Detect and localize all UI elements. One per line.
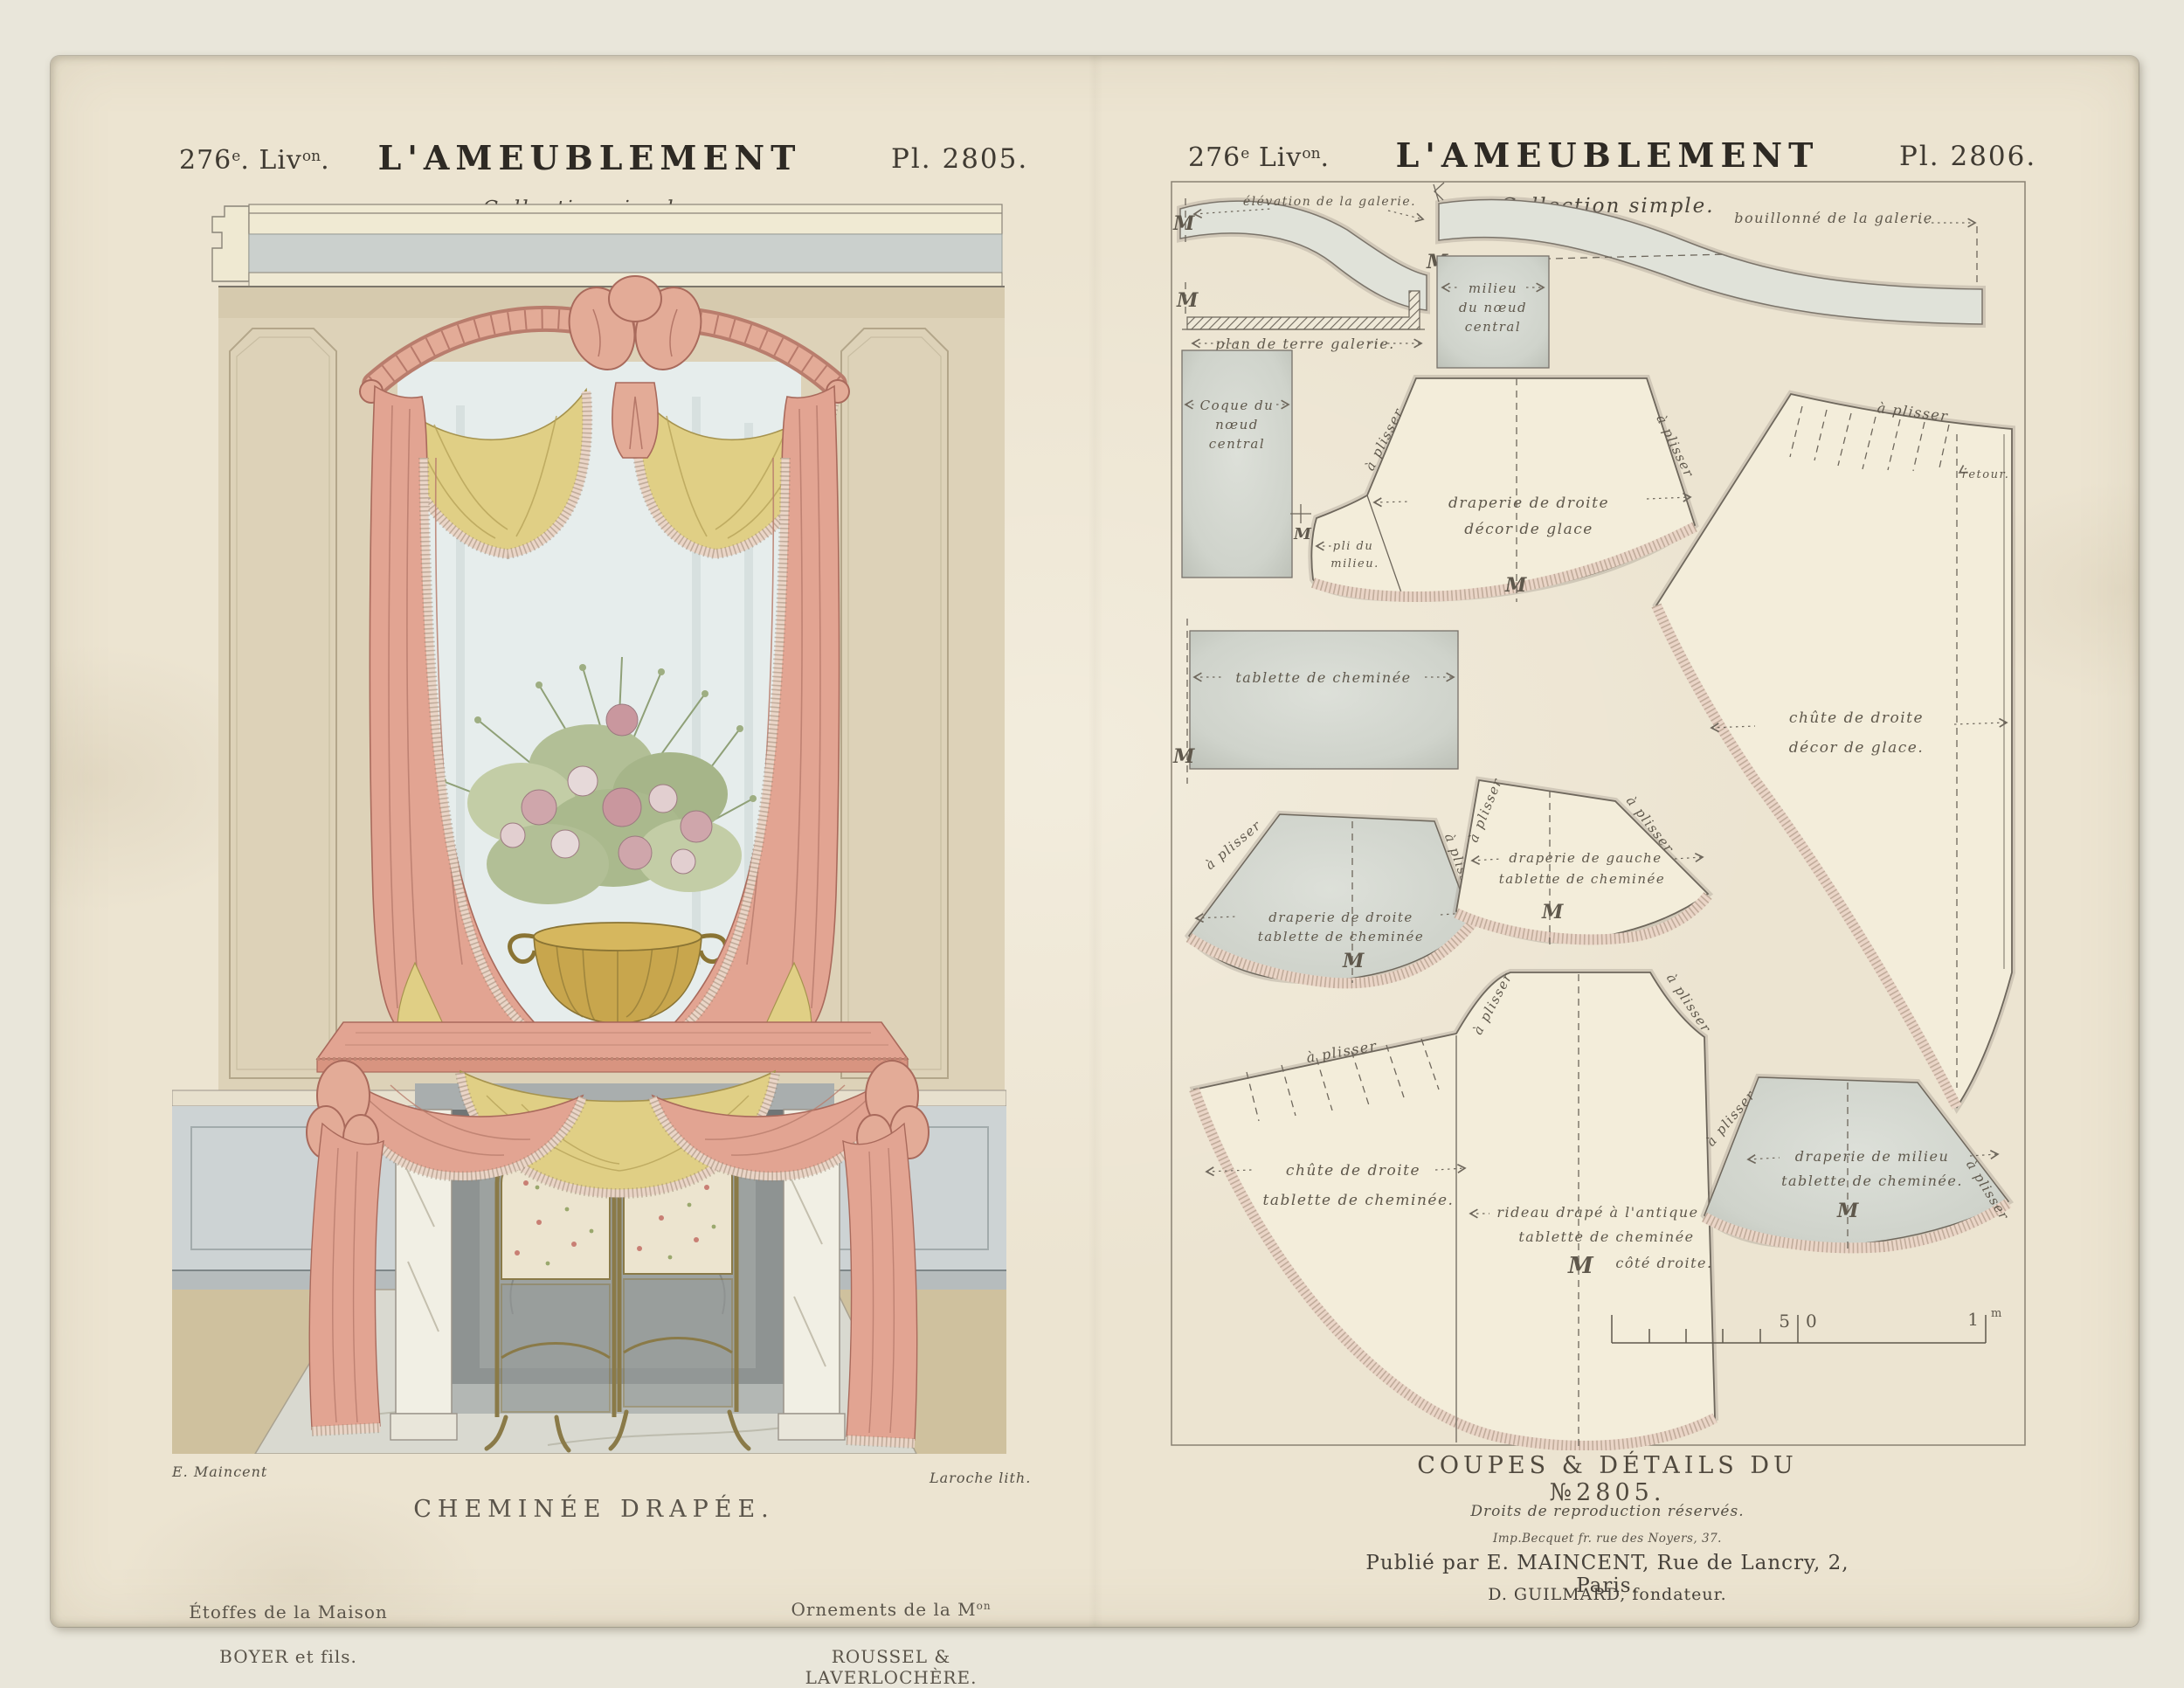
svg-text:central: central bbox=[1209, 436, 1265, 452]
right-livraison: 276e Livon. bbox=[1188, 142, 1330, 173]
scale-label-0: 0 bbox=[1806, 1311, 1817, 1332]
m-mark: M bbox=[1176, 289, 1199, 312]
piece-draperie-droite-tablette: à plisser à plisser draperie de droite t… bbox=[1189, 814, 1479, 983]
label-pli-milieu: pli du bbox=[1333, 540, 1373, 553]
fabric-credit-line1: Étoffes de la Maison bbox=[149, 1602, 428, 1622]
scale-label-1: 1 bbox=[1967, 1309, 1979, 1330]
mantel-shelf bbox=[317, 1022, 908, 1072]
piece-tablette-cheminee: tablette de cheminée M bbox=[1172, 619, 1458, 784]
svg-text:central: central bbox=[1465, 319, 1521, 335]
ornaments-credit-line1: Ornements de la Mon bbox=[751, 1599, 1031, 1620]
svg-text:décor de glace.: décor de glace. bbox=[1789, 739, 1925, 757]
scanned-print-page: { "palette":{ "backdrop":"#e9e6da", "pap… bbox=[0, 0, 2184, 1664]
piece-draperie-milieu-tablette: à plisser à plisser draperie de milieu t… bbox=[1703, 1077, 2012, 1250]
left-plate-number: Pl. 2805. bbox=[891, 143, 1028, 175]
label-bouillonne: bouillonné de la galerie bbox=[1734, 210, 1932, 226]
coupes-title: COUPES & DÉTAILS DU №2805. bbox=[1380, 1452, 1835, 1506]
label-milieu-noeud: milieu bbox=[1469, 280, 1517, 296]
m-mark: M bbox=[1342, 950, 1365, 972]
m-mark: M bbox=[1172, 745, 1195, 768]
m-mark: M bbox=[1567, 1253, 1594, 1279]
svg-text:côté droite.: côté droite. bbox=[1615, 1255, 1712, 1271]
svg-text:tablette de cheminée: tablette de cheminée bbox=[1518, 1228, 1694, 1245]
piece-chute-droite-glace: à plisser retour. chûte de droite décor … bbox=[1656, 394, 2012, 1107]
piece-draperie-gauche-tablette: à plisser à plisser draperie de gauche t… bbox=[1456, 776, 1708, 946]
fireplace-illustration bbox=[172, 196, 1006, 1454]
svg-text:tablette de cheminée.: tablette de cheminée. bbox=[1781, 1173, 1963, 1189]
label-plan-de-terre: plan de terre galerie. bbox=[1215, 336, 1395, 352]
label-draperie-droite-tablette: draperie de droite bbox=[1268, 910, 1413, 925]
label-coque: Coque du bbox=[1200, 398, 1275, 413]
label-chute-glace: chûte de droite bbox=[1789, 709, 1924, 727]
pattern-diagram: M élévation de la galerie. M bouillonné … bbox=[1168, 179, 2028, 1450]
left-plate-title: L'AMEUBLEMENT bbox=[349, 138, 830, 177]
scale-label-5: 5 bbox=[1779, 1311, 1790, 1332]
label-rideau-antique: rideau drapé à l'antique bbox=[1496, 1204, 1698, 1221]
label-draperie-milieu: draperie de milieu bbox=[1795, 1148, 1950, 1165]
svg-text:milieu.: milieu. bbox=[1330, 557, 1379, 571]
label-retour: retour. bbox=[1962, 468, 2010, 481]
label-tablette: tablette de cheminée bbox=[1235, 669, 1411, 686]
svg-text:tablette de cheminée: tablette de cheminée bbox=[1258, 929, 1425, 944]
right-plate-number: Pl. 2806. bbox=[1899, 141, 2036, 172]
artist-credit: E. Maincent bbox=[172, 1463, 267, 1480]
founder-credit: D. GUILMARD, fondateur. bbox=[1345, 1585, 1870, 1604]
svg-text:tablette de cheminée: tablette de cheminée bbox=[1499, 871, 1666, 887]
right-plate-title: L'AMEUBLEMENT bbox=[1367, 135, 1848, 175]
m-mark: M bbox=[1504, 574, 1527, 597]
label-elevation-galerie: élévation de la galerie. bbox=[1243, 195, 1416, 209]
scale-unit: m bbox=[1991, 1307, 2001, 1320]
piece-elevation-galerie: M élévation de la galerie. bbox=[1172, 195, 1427, 310]
label-draperie-gauche: draperie de gauche bbox=[1509, 850, 1662, 866]
fabric-credit-line2: BOYER et fils. bbox=[149, 1646, 428, 1667]
lithographer-credit: Laroche lith. bbox=[930, 1470, 1031, 1486]
svg-text:du nœud: du nœud bbox=[1459, 300, 1527, 315]
piece-rideau-drape-antique: à plisser à plisser à plisser chûte de d… bbox=[1194, 970, 1715, 1448]
label-draperie-droite-glace: draperie de droite bbox=[1448, 495, 1609, 512]
illustration-title: CHEMINÉE DRAPÉE. bbox=[393, 1496, 795, 1523]
piece-milieu-noeud: milieu du nœud central bbox=[1437, 256, 1549, 368]
svg-text:tablette de cheminée.: tablette de cheminée. bbox=[1263, 1192, 1455, 1209]
m-mark: M bbox=[1541, 901, 1564, 924]
label-chute-tablette: chûte de droite bbox=[1286, 1162, 1420, 1180]
svg-text:nœud: nœud bbox=[1215, 417, 1259, 432]
svg-text:décor de glace: décor de glace bbox=[1464, 521, 1593, 538]
rights-notice: Droits de reproduction réservés. bbox=[1380, 1503, 1835, 1520]
m-mark: M bbox=[1836, 1200, 1859, 1222]
printer-credit: Imp.Becquet fr. rue des Noyers, 37. bbox=[1380, 1532, 1835, 1546]
piece-draperie-droite-glace: M à plisser à plisser draperie de droite… bbox=[1290, 378, 1697, 602]
piece-coque-noeud: Coque du nœud central bbox=[1182, 350, 1292, 578]
left-livraison: 276e. Livon. bbox=[179, 145, 330, 176]
cornice bbox=[212, 204, 1005, 287]
m-mark: M bbox=[1293, 525, 1312, 543]
ornaments-credit-line2: ROUSSEL & LAVERLOCHÈRE. bbox=[751, 1646, 1031, 1688]
m-mark: M bbox=[1172, 212, 1195, 235]
